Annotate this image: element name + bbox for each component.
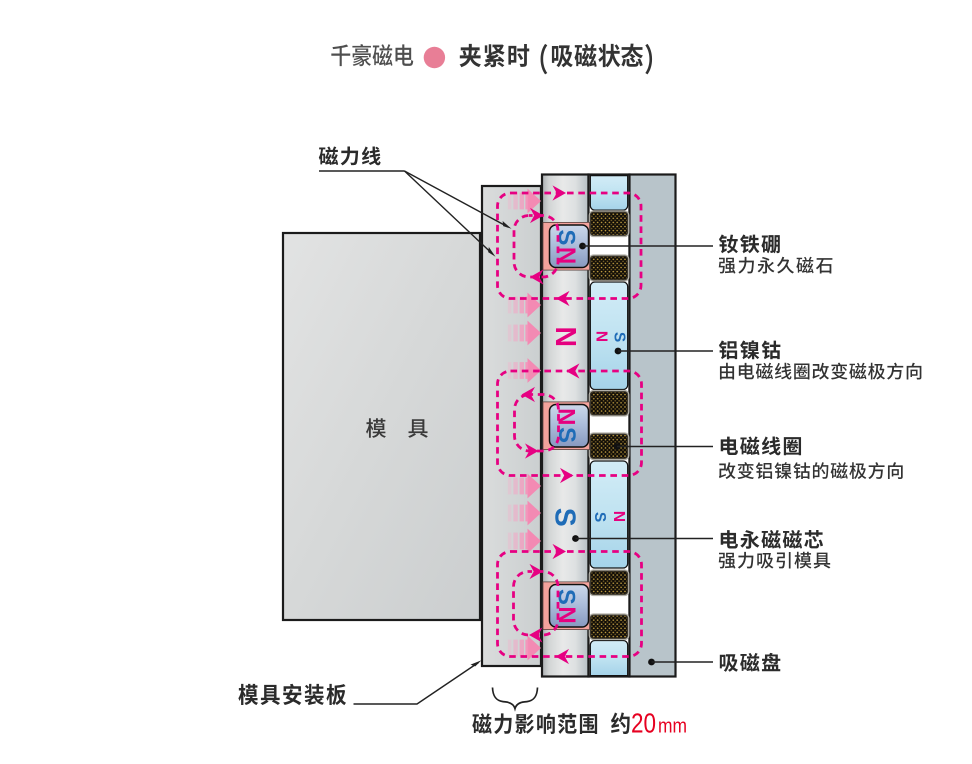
svg-text:N: N	[593, 331, 610, 342]
svg-text:mm: mm	[658, 715, 687, 737]
svg-text:N: N	[549, 327, 581, 348]
svg-text:S: S	[610, 332, 627, 342]
svg-text:S: S	[553, 229, 580, 245]
svg-text:N: N	[610, 511, 627, 522]
svg-text:S: S	[591, 512, 608, 522]
svg-text:N: N	[553, 408, 580, 425]
svg-text:S: S	[553, 589, 580, 605]
svg-text:S: S	[549, 508, 581, 527]
svg-text:20: 20	[631, 707, 656, 738]
